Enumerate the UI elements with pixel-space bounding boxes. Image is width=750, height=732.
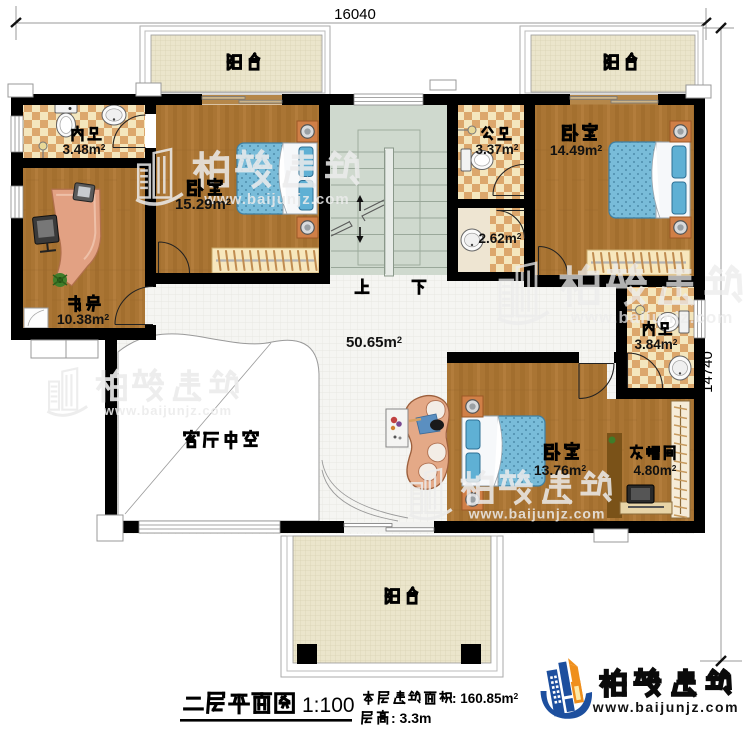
svg-text:14.49m2: 14.49m2 bbox=[550, 142, 602, 158]
svg-text:www.baijunjz.com: www.baijunjz.com bbox=[468, 506, 606, 522]
svg-text:1:100: 1:100 bbox=[302, 694, 355, 717]
svg-text:2.62m2: 2.62m2 bbox=[479, 231, 522, 246]
svg-text:www.baijunjz.com: www.baijunjz.com bbox=[103, 403, 232, 418]
svg-text:13.76m2: 13.76m2 bbox=[534, 462, 586, 478]
svg-text:15.29m2: 15.29m2 bbox=[175, 196, 231, 213]
svg-text:: 160.85m2: : 160.85m2 bbox=[452, 691, 519, 706]
svg-text:3.37m2: 3.37m2 bbox=[476, 142, 519, 157]
svg-text:10.38m2: 10.38m2 bbox=[57, 311, 109, 327]
svg-text:50.65m2: 50.65m2 bbox=[346, 334, 402, 351]
svg-text:: 3.3m: : 3.3m bbox=[391, 710, 431, 726]
svg-text:3.84m2: 3.84m2 bbox=[635, 337, 678, 352]
svg-text:4.80m2: 4.80m2 bbox=[634, 463, 677, 478]
svg-text:www.baijunjz.com: www.baijunjz.com bbox=[592, 699, 739, 715]
svg-text:3.48m2: 3.48m2 bbox=[63, 142, 106, 157]
svg-text:16040: 16040 bbox=[334, 6, 376, 23]
